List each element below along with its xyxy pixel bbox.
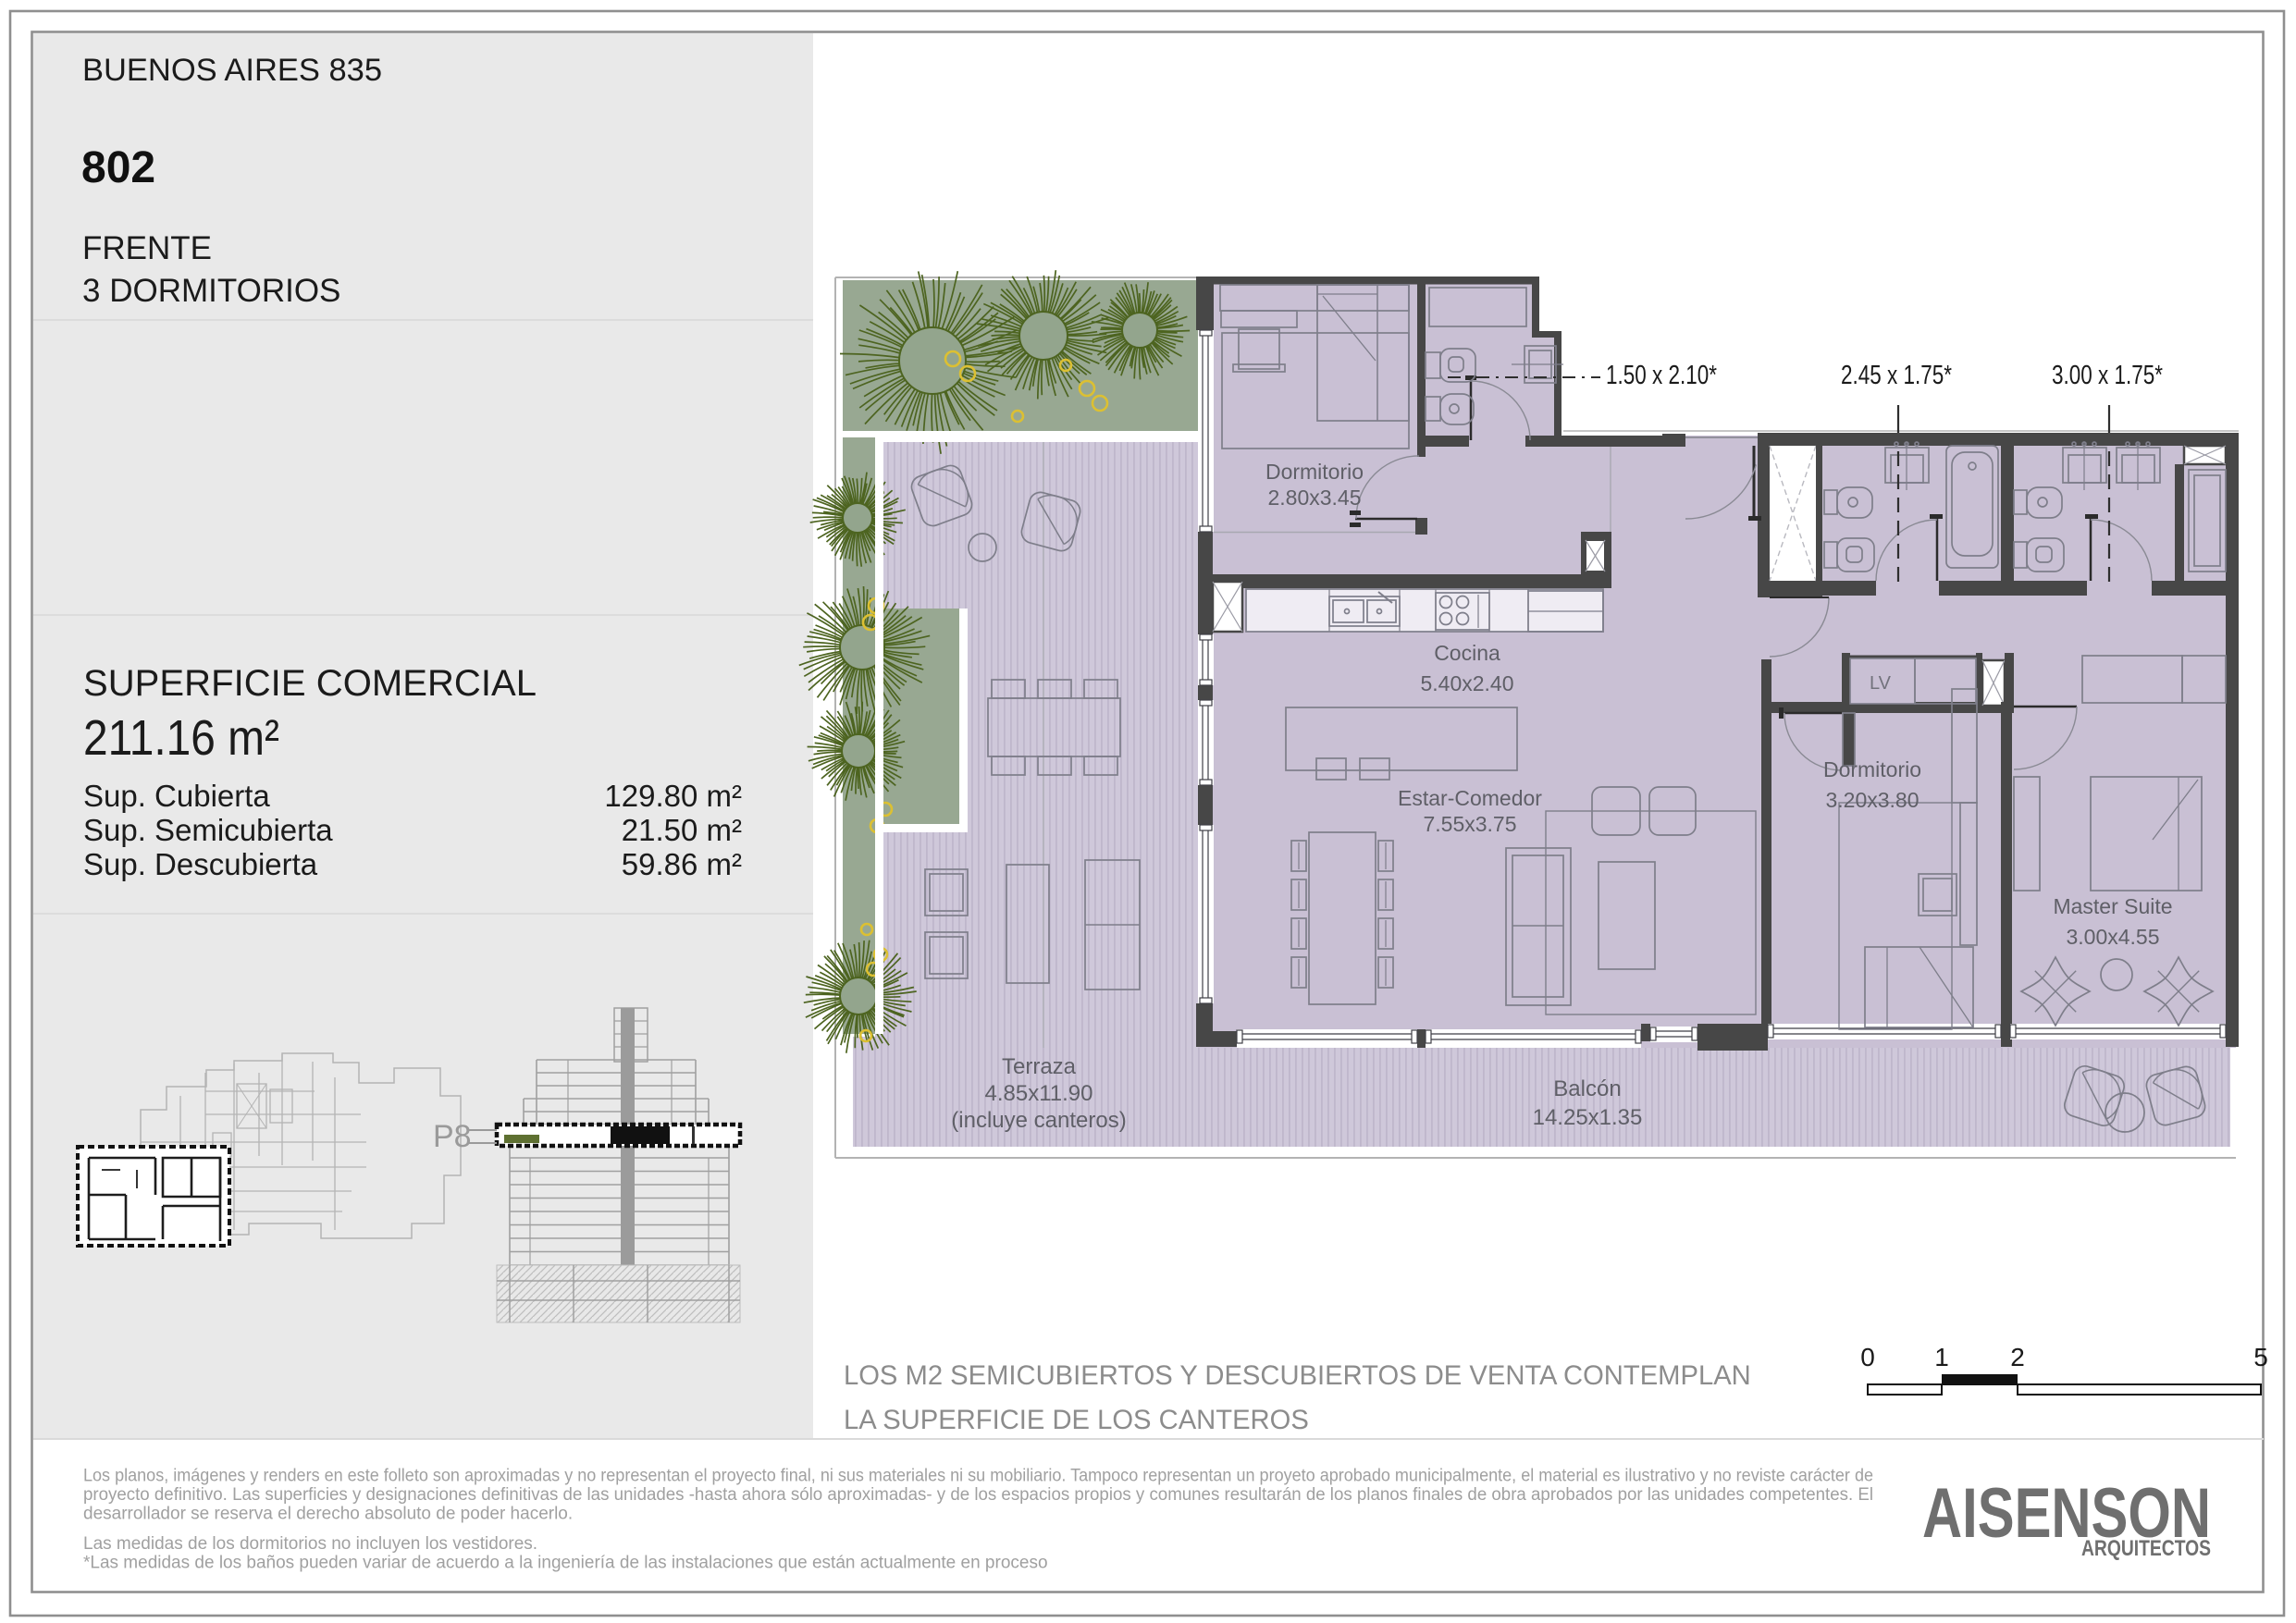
svg-text:Sup. Descubierta: Sup. Descubierta bbox=[83, 847, 318, 881]
svg-text:Dormitorio: Dormitorio bbox=[1823, 757, 1921, 781]
svg-text:Sup. Cubierta: Sup. Cubierta bbox=[83, 779, 270, 813]
svg-text:5: 5 bbox=[2253, 1343, 2268, 1371]
svg-text:(incluye canteros): (incluye canteros) bbox=[951, 1108, 1126, 1133]
svg-text:ARQUITECTOS: ARQUITECTOS bbox=[2081, 1536, 2211, 1561]
svg-text:7.55x3.75: 7.55x3.75 bbox=[1423, 812, 1516, 836]
svg-text:21.50 m²: 21.50 m² bbox=[622, 813, 742, 847]
svg-text:desarrollador se reserva el de: desarrollador se reserva el derecho abso… bbox=[83, 1505, 573, 1524]
svg-text:LV: LV bbox=[1870, 673, 1892, 694]
svg-text:LOS M2 SEMICUBIERTOS Y DESCUBI: LOS M2 SEMICUBIERTOS Y DESCUBIERTOS DE V… bbox=[844, 1361, 1751, 1391]
svg-text:129.80 m²: 129.80 m² bbox=[604, 779, 742, 813]
svg-text:Cocina: Cocina bbox=[1434, 641, 1500, 665]
svg-text:Las medidas de los dormitorios: Las medidas de los dormitorios no incluy… bbox=[83, 1534, 537, 1554]
svg-text:P8: P8 bbox=[433, 1119, 472, 1154]
svg-text:LA SUPERFICIE DE LOS CANTEROS: LA SUPERFICIE DE LOS CANTEROS bbox=[844, 1406, 1309, 1435]
svg-text:FRENTE: FRENTE bbox=[82, 230, 212, 266]
svg-text:3 DORMITORIOS: 3 DORMITORIOS bbox=[82, 273, 340, 309]
svg-text:3.20x3.80: 3.20x3.80 bbox=[1825, 788, 1919, 812]
svg-text:211.16 m²: 211.16 m² bbox=[83, 710, 279, 766]
svg-text:4.85x11.90: 4.85x11.90 bbox=[985, 1081, 1093, 1106]
svg-text:BUENOS AIRES 835: BUENOS AIRES 835 bbox=[82, 53, 382, 88]
svg-text:Terraza: Terraza bbox=[1002, 1054, 1077, 1079]
svg-text:3.00x4.55: 3.00x4.55 bbox=[2066, 925, 2159, 949]
svg-text:*Las medidas de los baños pued: *Las medidas de los baños pueden variar … bbox=[83, 1554, 1048, 1573]
svg-text:2: 2 bbox=[2010, 1343, 2025, 1371]
svg-text:2.45 x 1.75*: 2.45 x 1.75* bbox=[1841, 361, 1952, 390]
svg-text:Estar-Comedor: Estar-Comedor bbox=[1398, 786, 1542, 810]
svg-text:SUPERFICIE COMERCIAL: SUPERFICIE COMERCIAL bbox=[83, 663, 537, 704]
svg-text:Master Suite: Master Suite bbox=[2053, 894, 2172, 918]
svg-text:2.80x3.45: 2.80x3.45 bbox=[1267, 486, 1361, 510]
svg-text:14.25x1.35: 14.25x1.35 bbox=[1533, 1105, 1643, 1130]
svg-text:0: 0 bbox=[1860, 1343, 1875, 1371]
svg-text:Balcón: Balcón bbox=[1553, 1076, 1621, 1101]
svg-text:1.50 x 2.10*: 1.50 x 2.10* bbox=[1606, 361, 1717, 390]
svg-text:802: 802 bbox=[81, 143, 155, 192]
svg-text:3.00 x 1.75*: 3.00 x 1.75* bbox=[2052, 361, 2163, 390]
svg-text:1: 1 bbox=[1934, 1343, 1949, 1371]
svg-text:Los planos, imágenes y renders: Los planos, imágenes y renders en este f… bbox=[83, 1467, 1873, 1486]
svg-text:Dormitorio: Dormitorio bbox=[1265, 460, 1364, 484]
svg-text:proyecto definitivo. Las super: proyecto definitivo. Las superficies y d… bbox=[83, 1485, 1873, 1505]
svg-text:5.40x2.40: 5.40x2.40 bbox=[1420, 671, 1513, 695]
svg-text:Sup. Semicubierta: Sup. Semicubierta bbox=[83, 813, 333, 847]
svg-text:59.86 m²: 59.86 m² bbox=[622, 847, 742, 881]
